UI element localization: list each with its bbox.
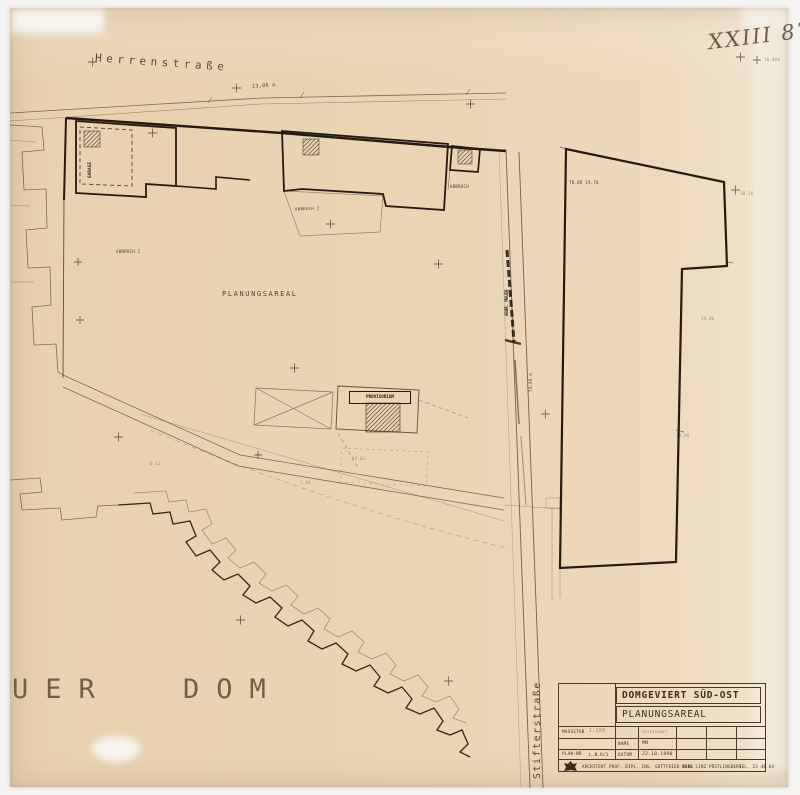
plan-nr-label: PLAN-NR	[562, 751, 582, 756]
gezeichnet-label: GEZEICHNET	[642, 729, 668, 734]
abbruch-label: ABBRUCH	[450, 185, 469, 189]
scanned-site-plan: Herrenstraße Stifterstraße PLANUNGSAREAL…	[0, 0, 800, 795]
garage-label: GARAGE	[88, 162, 92, 178]
tb-line	[706, 726, 707, 759]
subtitle-box: PLANUNGSAREAL	[616, 706, 761, 723]
mauer-label: ABBR. MAUER	[505, 290, 509, 317]
massstab-label: MASSSTAB	[562, 729, 585, 734]
dimension-street: 74,00 m	[529, 373, 533, 392]
provisorium-box: PROVISORIUM	[349, 391, 411, 404]
tb-line	[615, 684, 616, 759]
street-right-lines	[499, 149, 560, 788]
abbruch-1-label: ABBRUCH 1	[116, 250, 140, 254]
tb-line	[736, 726, 737, 759]
tb-line	[559, 759, 765, 760]
level-trbo-right: TR.BÖ 19,76	[569, 181, 599, 185]
street-label-stifterstrasse: Stifterstraße	[533, 681, 543, 779]
datum-label: DATUM	[618, 752, 632, 757]
datum-value: 22.10.1990	[642, 752, 673, 757]
building-east	[560, 147, 733, 568]
title-block: DOMGEVIERT SÜD-OST PLANUNGSAREAL MASSSTA…	[558, 683, 766, 772]
faint-mark: 7.44	[300, 481, 311, 485]
faint-mark: 14.01	[352, 457, 366, 461]
abbruch-2-label: ABBRUCH 2	[295, 207, 319, 212]
architect-address: 4040 LINZ-PÖSTLINGBERG	[682, 764, 742, 769]
level-mark: 19.80	[701, 317, 715, 321]
name-value: MN	[642, 741, 648, 746]
plan-subtitle: PLANUNGSAREAL	[622, 709, 707, 720]
tb-line	[638, 726, 639, 759]
dom-label: UER DOM	[12, 676, 283, 703]
tb-line	[676, 726, 677, 759]
dom-outline	[118, 491, 470, 757]
architect-phone: TEL. 23 46 84	[739, 764, 774, 769]
misc-faint-lines	[546, 498, 560, 600]
diagonal-band	[63, 375, 506, 548]
name-label: NAME	[618, 741, 629, 746]
title-box: DOMGEVIERT SÜD-OST	[616, 687, 761, 704]
provisorium-label: PROVISORIUM	[366, 395, 394, 399]
street-top-lines	[10, 89, 506, 121]
elevation-note: 10.860	[764, 58, 780, 62]
building-north-mid	[282, 131, 448, 236]
massstab-value: 1:200	[589, 728, 606, 734]
faint-mark: 6.12	[150, 462, 161, 466]
plan-nr-value: L.N.R/1	[589, 752, 609, 757]
architect-logo-icon	[563, 761, 578, 772]
architect-name: ARCHITEKT PROF. DIPL. ING. GOTTFRIED NOB…	[582, 764, 693, 769]
level-mark: 10.26	[740, 192, 754, 196]
tb-line	[559, 726, 765, 727]
plan-title: DOMGEVIERT SÜD-OST	[622, 690, 739, 701]
boundary-north	[63, 118, 506, 378]
survey-crosses	[74, 53, 761, 686]
building-north-west	[76, 121, 250, 197]
tb-line	[559, 749, 765, 750]
planungsareal-label: PLANUNGSAREAL	[222, 291, 298, 298]
level-mark: 13.86	[676, 434, 690, 438]
